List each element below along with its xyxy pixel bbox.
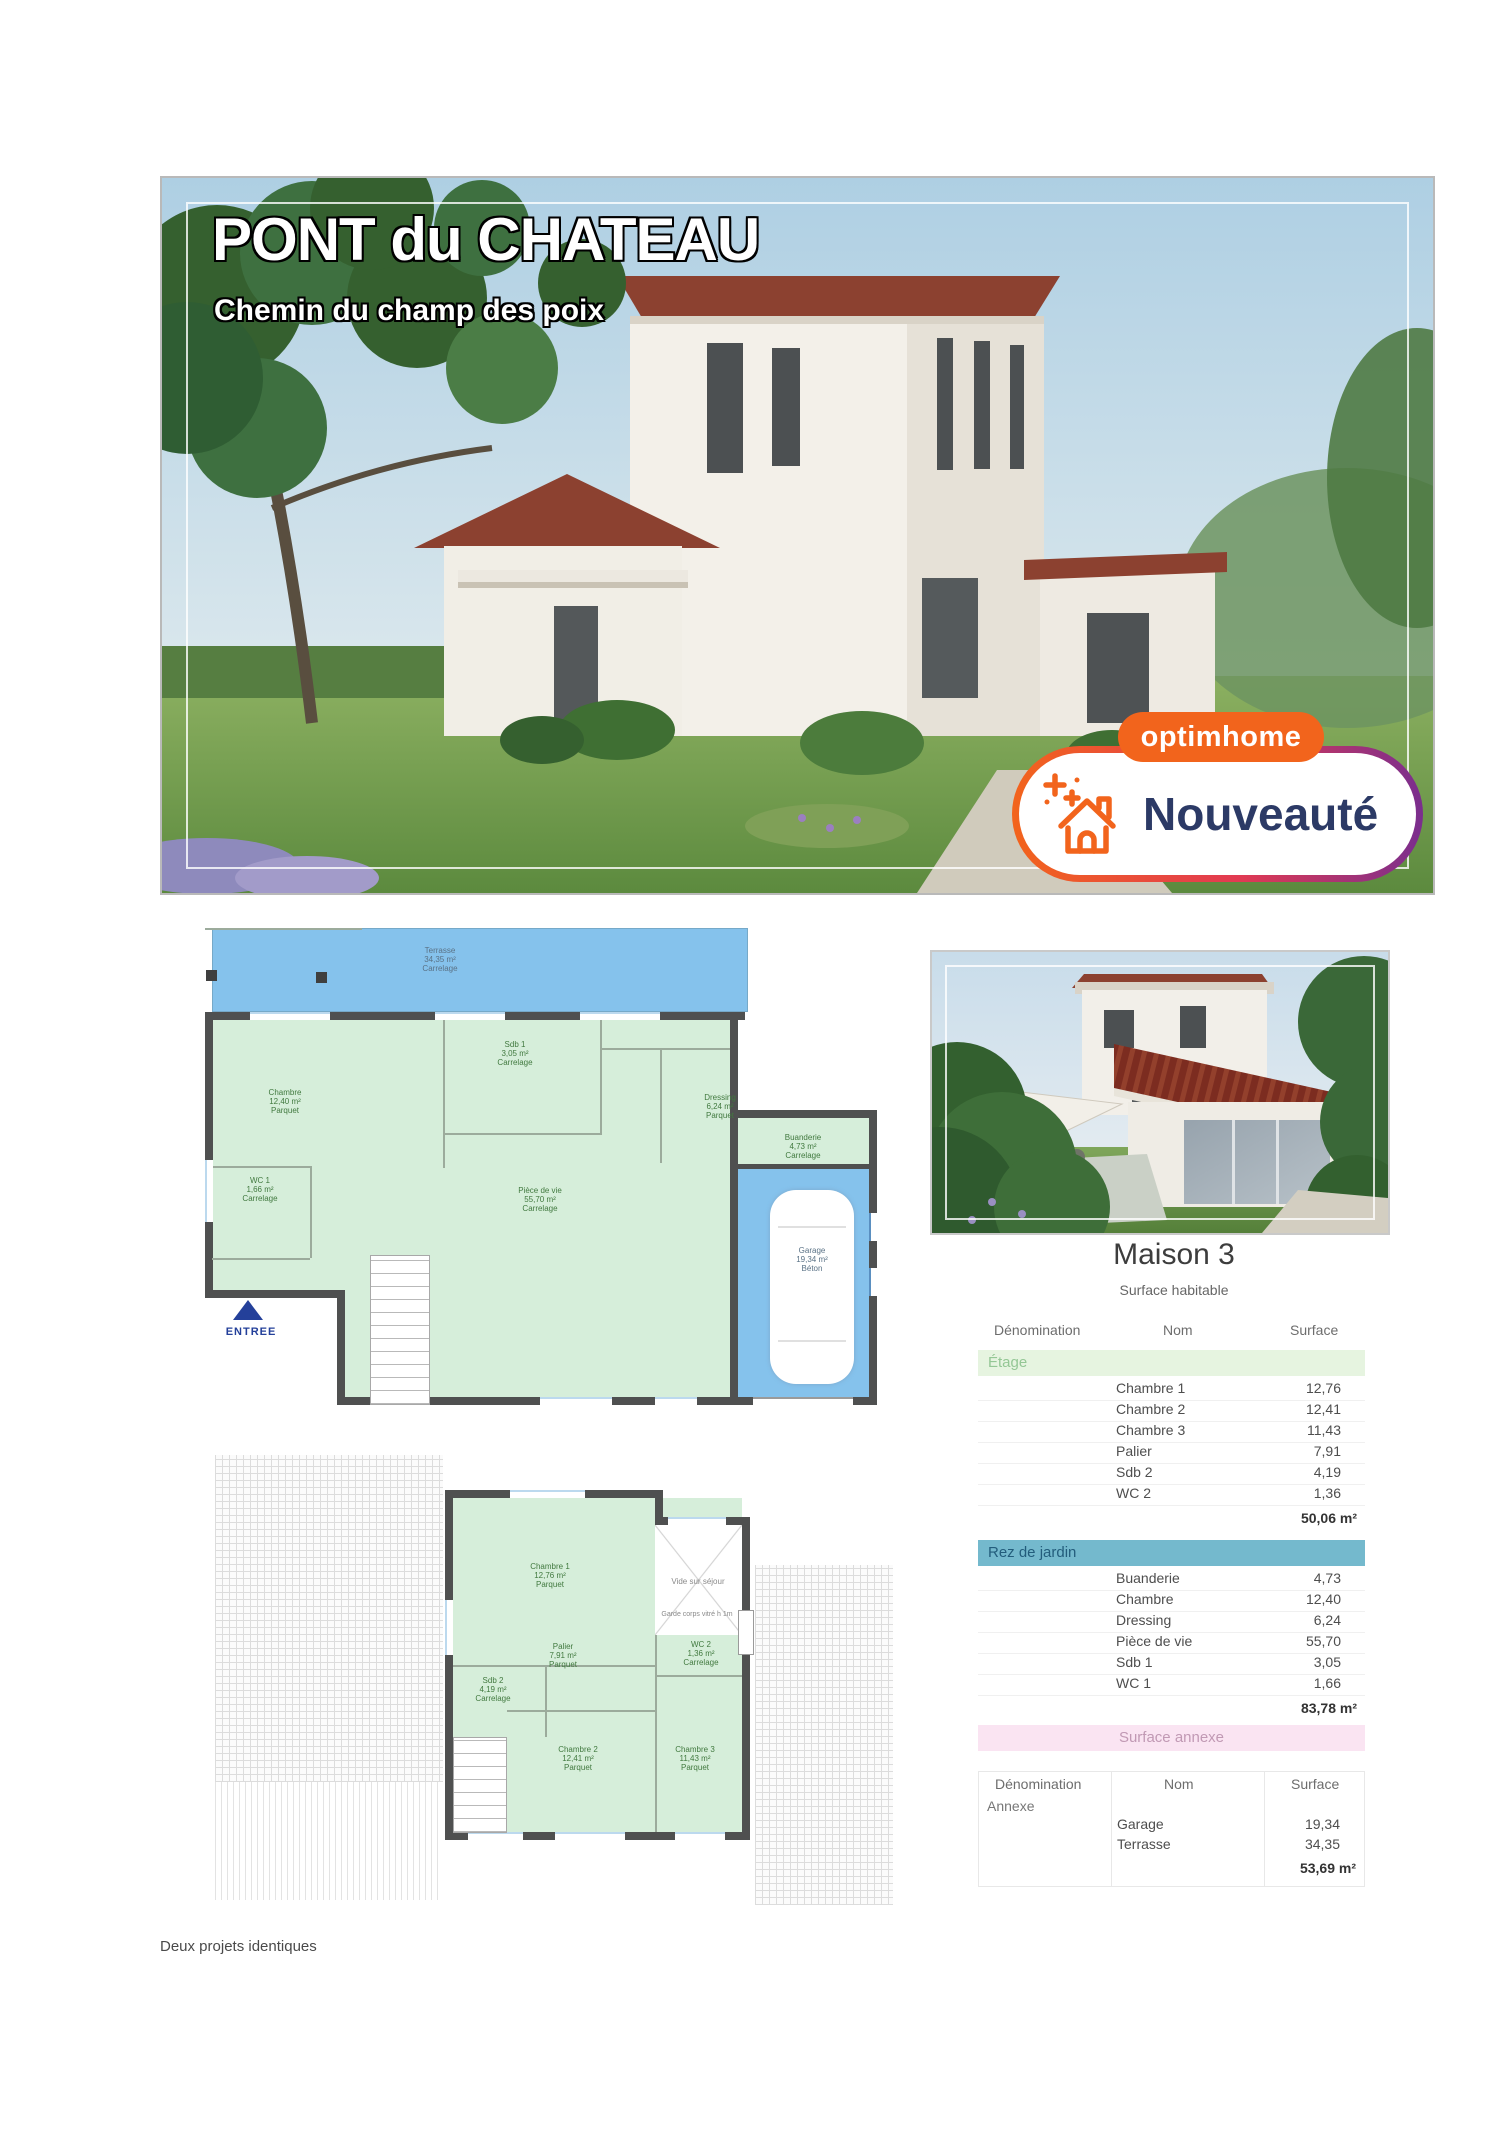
stairs — [453, 1737, 507, 1833]
table-row: Chambre12,40 — [978, 1591, 1365, 1612]
car-illustration — [770, 1190, 854, 1384]
room-label-dressing: Dressing6,24 m²Parquet — [685, 1093, 755, 1120]
room-label-sdb2: Sdb 24,19 m²Carrelage — [458, 1676, 528, 1703]
row-nom: WC 1 — [1116, 1675, 1151, 1691]
garage-window — [869, 1213, 877, 1241]
window — [580, 1012, 660, 1020]
floorplan-upper: Chambre 112,76 m²Parquet Sdb 24,19 m²Car… — [210, 1450, 895, 1910]
etage-total: 50,06 m² — [978, 1506, 1365, 1530]
window — [250, 1012, 330, 1020]
partition — [310, 1166, 312, 1258]
row-surface: 7,91 — [1314, 1443, 1341, 1459]
table-row: Pièce de vie55,70 — [978, 1633, 1365, 1654]
table-row: Chambre 311,43 — [978, 1422, 1365, 1443]
row-surface: 12,76 — [1306, 1380, 1341, 1396]
roof-hatch — [215, 1782, 443, 1900]
roof-hatch — [215, 1455, 443, 1782]
window — [468, 1832, 523, 1840]
room-label-wc1: WC 11,66 m²Carrelage — [225, 1176, 295, 1203]
room-label-buanderie: Buanderie4,73 m²Carrelage — [768, 1133, 838, 1160]
room-label-chambre3: Chambre 311,43 m²Parquet — [652, 1745, 738, 1772]
table-row: Sdb 24,19 — [978, 1464, 1365, 1485]
window — [555, 1832, 625, 1840]
window — [205, 1160, 213, 1222]
partition — [443, 1020, 445, 1168]
table-row: Sdb 13,05 — [978, 1654, 1365, 1675]
partition — [655, 1635, 657, 1832]
annexe-box: Dénomination Nom Surface Annexe Garage19… — [978, 1771, 1365, 1887]
annexe-table: Surface annexe Dénomination Nom Surface … — [958, 1725, 1390, 1887]
partition — [600, 1020, 602, 1133]
table-subtitle: Surface habitable — [958, 1282, 1390, 1298]
listing-page: PONT du CHATEAU Chemin du champ des poix — [0, 0, 1500, 2143]
header-surface: Surface — [1291, 1776, 1339, 1792]
room-label-chambre: Chambre12,40 m²Parquet — [250, 1088, 320, 1115]
rear-view-photo — [930, 950, 1390, 1235]
floorplan-ground: Terrasse34,35 m²Carrelage — [205, 928, 895, 1420]
window — [675, 1832, 725, 1840]
partition — [205, 928, 362, 930]
row-surface: 3,05 — [1314, 1654, 1341, 1670]
hero-title: PONT du CHATEAU — [212, 208, 759, 272]
terrace-post — [316, 972, 327, 983]
window — [510, 1490, 585, 1498]
row-surface: 1,66 — [1314, 1675, 1341, 1691]
wall — [742, 1517, 750, 1840]
annexe-total: 53,69 m² — [979, 1856, 1364, 1880]
table-row: Chambre 212,41 — [978, 1401, 1365, 1422]
row-nom: Chambre 2 — [1116, 1401, 1185, 1417]
terrace-post — [206, 970, 217, 981]
row-nom: Dressing — [1116, 1612, 1171, 1628]
row-surface: 4,73 — [1314, 1570, 1341, 1586]
house-title: Maison 3 — [958, 1238, 1390, 1272]
void-label: Vide sur séjour — [648, 1577, 748, 1586]
table-row: Terrasse34,35 — [979, 1836, 1364, 1856]
row-surface: 12,40 — [1306, 1591, 1341, 1607]
header-nom: Nom — [1163, 1322, 1193, 1338]
row-nom: Pièce de vie — [1116, 1633, 1192, 1649]
roof-hatch — [755, 1565, 893, 1905]
wall — [445, 1490, 453, 1840]
row-nom: Sdb 1 — [1116, 1654, 1153, 1670]
row-surface: 6,24 — [1314, 1612, 1341, 1628]
stairs — [370, 1255, 430, 1405]
header-denomination: Dénomination — [995, 1776, 1081, 1792]
table-row: Palier7,91 — [978, 1443, 1365, 1464]
row-surface: 19,34 — [1305, 1816, 1340, 1832]
window — [435, 1012, 505, 1020]
wall — [337, 1290, 345, 1405]
header-surface: Surface — [1290, 1322, 1338, 1338]
row-nom: Terrasse — [1117, 1836, 1171, 1852]
room-label-piece-de-vie: Pièce de vie55,70 m²Carrelage — [500, 1186, 580, 1213]
nouveaute-badge: Nouveauté optimhome — [1012, 712, 1426, 884]
entree-arrow-icon — [233, 1300, 263, 1320]
room-label-terrasse: Terrasse34,35 m²Carrelage — [380, 946, 500, 973]
table-row: Buanderie4,73 — [978, 1570, 1365, 1591]
rear-house-illustration — [932, 952, 1388, 1233]
row-nom: Sdb 2 — [1116, 1464, 1153, 1480]
badge-body: Nouveauté — [1019, 753, 1416, 875]
row-nom: Buanderie — [1116, 1570, 1180, 1586]
window — [655, 1397, 697, 1405]
room-label-wc2: WC 21,36 m²Carrelage — [668, 1640, 734, 1667]
surface-table: Maison 3 Surface habitable Dénomination … — [958, 1238, 1390, 1744]
table-row: Garage19,34 — [979, 1816, 1364, 1836]
rez-total: 83,78 m² — [978, 1696, 1365, 1720]
row-nom: WC 2 — [1116, 1485, 1151, 1501]
entry-porch — [212, 1290, 345, 1405]
annexe-header-row: Dénomination Nom Surface — [979, 1772, 1364, 1796]
wall — [869, 1110, 877, 1405]
guardrail-label: Garde corps vitré h 1m — [642, 1610, 752, 1619]
badge-gradient-ring: Nouveauté — [1012, 746, 1423, 882]
wall — [730, 1012, 738, 1405]
row-nom: Chambre — [1116, 1591, 1174, 1607]
row-nom: Palier — [1116, 1443, 1152, 1459]
section-banner-rez: Rez de jardin — [978, 1540, 1365, 1566]
header-denomination: Dénomination — [994, 1322, 1080, 1338]
window — [445, 1600, 453, 1655]
table-header-row: Dénomination Nom Surface — [958, 1322, 1390, 1340]
partition — [212, 1258, 310, 1260]
partition — [660, 1050, 662, 1163]
window — [540, 1397, 612, 1405]
row-surface: 55,70 — [1306, 1633, 1341, 1649]
hero-subtitle: Chemin du champ des poix — [214, 294, 604, 328]
row-surface: 11,43 — [1307, 1422, 1341, 1438]
partition — [545, 1667, 547, 1737]
garage-door-opening — [753, 1397, 853, 1405]
partition — [602, 1048, 730, 1050]
table-row: WC 11,66 — [978, 1675, 1365, 1696]
row-surface: 4,19 — [1314, 1464, 1341, 1480]
room-label-palier: Palier7,91 m²Parquet — [528, 1642, 598, 1669]
section-banner-etage: Étage — [978, 1350, 1365, 1376]
row-surface: 1,36 — [1314, 1485, 1341, 1501]
footer-note: Deux projets identiques — [160, 1938, 317, 1955]
room-label-sdb1: Sdb 13,05 m²Carrelage — [480, 1040, 550, 1067]
room-label-garage: Garage19,34 m²Béton — [777, 1246, 847, 1273]
garage-window — [869, 1268, 877, 1296]
row-surface: 34,35 — [1305, 1836, 1340, 1852]
partition — [445, 1133, 602, 1135]
annexe-banner: Surface annexe — [978, 1725, 1365, 1751]
partition — [657, 1675, 742, 1677]
optimhome-logo-text: optimhome — [1141, 721, 1302, 754]
header-nom: Nom — [1164, 1776, 1194, 1792]
optimhome-logo: optimhome — [1118, 712, 1324, 762]
annexe-section-label: Annexe — [979, 1796, 1364, 1816]
row-nom: Chambre 3 — [1116, 1422, 1185, 1438]
table-row: Dressing6,24 — [978, 1612, 1365, 1633]
row-nom: Chambre 1 — [1116, 1380, 1185, 1396]
table-row: Chambre 112,76 — [978, 1380, 1365, 1401]
entree-label: ENTREE — [213, 1326, 289, 1338]
wall — [733, 1164, 869, 1169]
room-label-chambre1: Chambre 112,76 m²Parquet — [510, 1562, 590, 1589]
optimhome-house-icon — [1039, 770, 1131, 858]
partition — [212, 1166, 310, 1168]
window — [668, 1517, 726, 1525]
table-row: WC 21,36 — [978, 1485, 1365, 1506]
wall — [205, 1012, 213, 1298]
badge-label: Nouveauté — [1143, 787, 1378, 841]
partition — [507, 1710, 655, 1712]
row-nom: Garage — [1117, 1816, 1164, 1832]
room-label-chambre2: Chambre 212,41 m²Parquet — [535, 1745, 621, 1772]
wall — [205, 1290, 345, 1298]
row-surface: 12,41 — [1306, 1401, 1341, 1417]
